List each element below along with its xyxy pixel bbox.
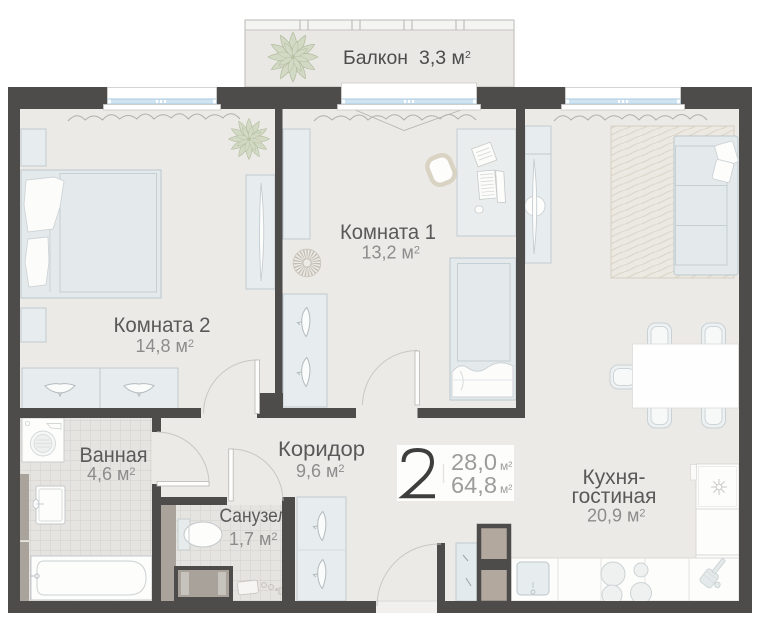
svg-text:9,6 м2: 9,6 м2 [296,461,345,481]
svg-text:м²: м² [500,459,512,473]
svg-text:64,8: 64,8 [451,472,497,498]
svg-text:м²: м² [500,482,512,496]
svg-text:4,6 м2: 4,6 м2 [87,464,136,484]
svg-text:Санузел: Санузел [220,505,288,527]
svg-text:14,8 м2: 14,8 м2 [136,336,195,356]
svg-text:13,2 м2: 13,2 м2 [362,243,421,263]
svg-text:Комната 2: Комната 2 [114,314,211,337]
svg-text:Коридор: Коридор [278,438,365,461]
svg-text:3,3 м2: 3,3 м2 [419,47,471,69]
svg-text:Балкон: Балкон [343,47,408,69]
svg-text:20,9 м2: 20,9 м2 [587,506,646,526]
svg-text:1,7 м2: 1,7 м2 [229,529,278,549]
svg-text:Комната 1: Комната 1 [340,221,436,244]
